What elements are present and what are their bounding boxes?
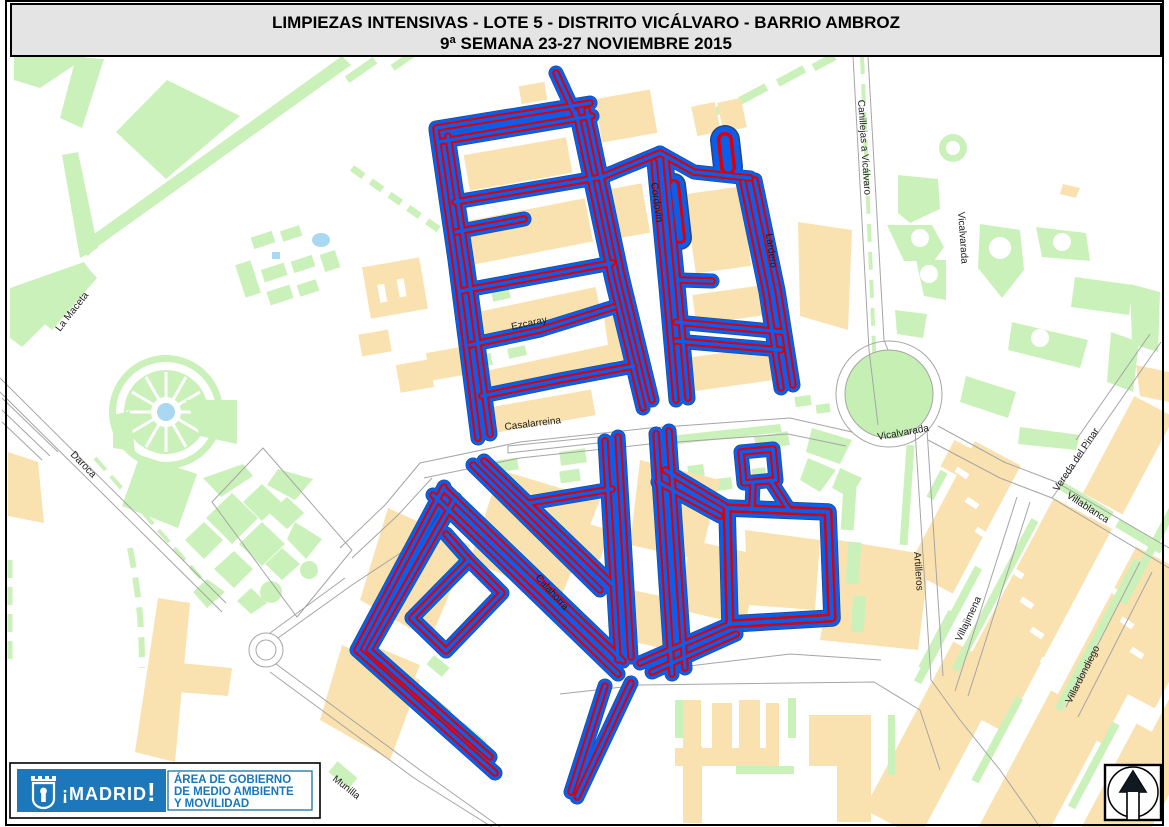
svg-text:Y MOVILIDAD: Y MOVILIDAD xyxy=(174,798,249,810)
svg-text:9ª SEMANA 23-27 NOVIEMBRE 2015: 9ª SEMANA 23-27 NOVIEMBRE 2015 xyxy=(440,34,732,53)
svg-text:DE MEDIO AMBIENTE: DE MEDIO AMBIENTE xyxy=(174,786,294,798)
svg-text:LIMPIEZAS INTENSIVAS - LOTE 5: LIMPIEZAS INTENSIVAS - LOTE 5 - DISTRITO… xyxy=(272,13,900,32)
svg-text:ÁREA DE GOBIERNO: ÁREA DE GOBIERNO xyxy=(174,773,291,786)
